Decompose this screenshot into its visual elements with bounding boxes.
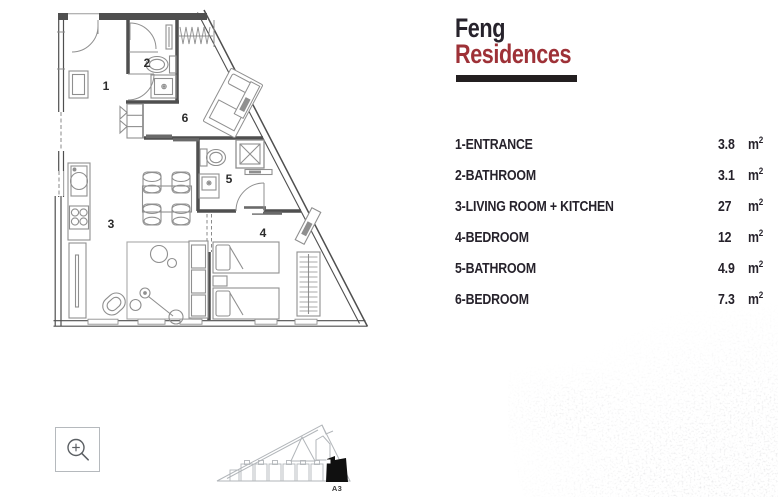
room-label: 6-BEDROOM [455,285,529,316]
side-table [130,300,141,311]
bathroom-5-fixtures [199,140,272,198]
room-label: 1-ENTRANCE [455,130,533,161]
room-area-value: 7.3 [718,285,735,316]
armchair [99,289,129,318]
plant [151,246,168,263]
wardrobe-4 [297,252,320,316]
room-area-unit: m2 [748,223,763,254]
room-number-6: 6 [182,111,189,125]
room-label: 3-LIVING ROOM + KITCHEN [455,192,614,223]
room-area-unit: m2 [748,192,763,223]
room-number-1: 1 [103,79,110,93]
bedroom-4-furniture [213,208,321,319]
room-area-unit: m2 [748,130,763,161]
floor-plan: 1 2 3 4 5 6 [40,0,380,345]
title-underline [456,75,577,82]
interior-walls [126,18,301,320]
legend-row: 5-BATHROOM 4.9 m2 [455,254,770,285]
room-area-value: 3.1 [718,161,735,192]
page: 1 2 3 4 5 6 Feng Residences 1-ENTRANCE 3… [0,0,778,497]
room-number-2: 2 [144,56,151,70]
sofa [189,241,208,318]
room-number-5: 5 [226,172,233,186]
site-plan-unit-label: A3 [332,484,342,493]
room-number-3: 3 [108,217,115,231]
window-slab-4 [295,208,320,245]
room-label: 2-BATHROOM [455,161,536,192]
bedroom-6-furniture [179,20,263,138]
bottom-windows [88,319,317,324]
legend-row: 3-LIVING ROOM + KITCHEN 27 m2 [455,192,770,223]
room-area-value: 4.9 [718,254,735,285]
grunge-texture [508,287,778,497]
area-legend: 1-ENTRANCE 3.8 m2 2-BATHROOM 3.1 m2 3-LI… [455,130,770,316]
zoom-button[interactable] [55,427,100,472]
entry-door-arc [72,26,98,52]
zoom-in-icon [64,436,92,464]
dining-table [143,186,192,212]
legend-row: 6-BEDROOM 7.3 m2 [455,285,770,316]
room-area-value: 27 [718,192,731,223]
brand-title-line1: Feng [455,15,505,41]
hall-cabinet [120,104,143,138]
site-plan-map: A3 [205,418,370,497]
room-area-value: 12 [718,223,731,254]
entrance-closet [69,71,88,98]
room-label: 5-BATHROOM [455,254,536,285]
kitchen-living-furniture [68,163,208,324]
room-label: 4-BEDROOM [455,223,529,254]
exterior-openings [54,12,318,324]
rug [127,242,191,319]
kitchen-sink [71,173,88,190]
shower2-door-arc [130,23,156,49]
brand-title-line2: Residences [455,41,571,67]
room-area-unit: m2 [748,254,763,285]
dining-chairs [143,172,190,225]
room-area-value: 3.8 [718,130,735,161]
bathroom2-door-arc [128,74,154,100]
room-number-4: 4 [260,226,267,240]
legend-row: 2-BATHROOM 3.1 m2 [455,161,770,192]
room-area-unit: m2 [748,161,763,192]
legend-row: 4-BEDROOM 12 m2 [455,223,770,254]
legend-row: 1-ENTRANCE 3.8 m2 [455,130,770,161]
site-plan-units [230,461,323,482]
room-area-unit: m2 [748,285,763,316]
bed-6 [203,68,263,138]
